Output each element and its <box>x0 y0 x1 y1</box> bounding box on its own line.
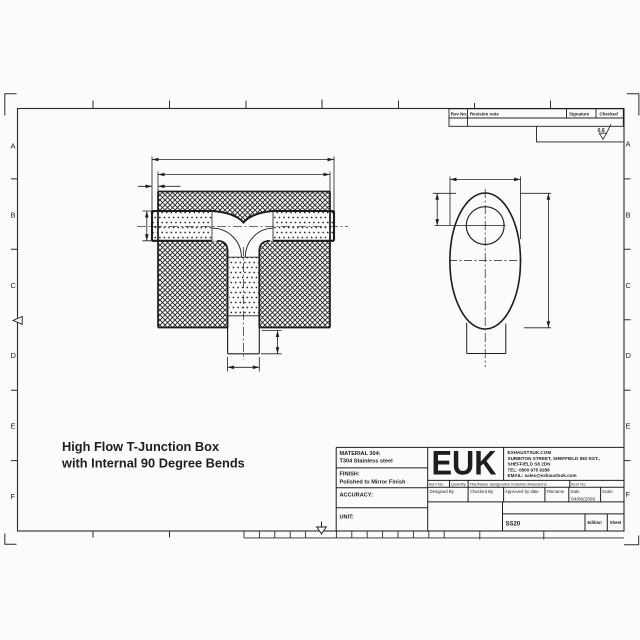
svg-text:E: E <box>626 422 631 431</box>
svg-text:EXHAUSTSUK.COM: EXHAUSTSUK.COM <box>508 450 552 455</box>
svg-text:`04/06/2009: `04/06/2009 <box>570 497 596 503</box>
svg-text:Filename: Filename <box>547 489 565 494</box>
svg-text:T304 Stainless steel: T304 Stainless steel <box>340 459 394 465</box>
svg-text:EMAIL: sales@exhaustsuk.com: EMAIL: sales@exhaustsuk.com <box>508 473 577 478</box>
svg-text:Scale: Scale <box>602 489 613 494</box>
svg-text:Rev No.: Rev No. <box>451 111 467 116</box>
svg-text:Polished to Mirror Finish: Polished to Mirror Finish <box>340 480 406 486</box>
svg-text:Designed By: Designed By <box>430 489 455 494</box>
svg-text:EUK: EUK <box>432 445 497 483</box>
svg-text:ACCURACY:: ACCURACY: <box>340 493 374 499</box>
svg-text:TEL: 0800 975 9288: TEL: 0800 975 9288 <box>508 467 551 472</box>
svg-text:Date: Date <box>571 489 581 494</box>
svg-text:Item No.: Item No. <box>571 481 586 486</box>
svg-text:MATERIAL 304:: MATERIAL 304: <box>340 451 381 457</box>
svg-text:Checked By: Checked By <box>470 489 494 494</box>
svg-text:SURBITON STREET, SHEFFIELD IND: SURBITON STREET, SHEFFIELD IND EST., <box>508 456 600 461</box>
svg-text:Item No.: Item No. <box>429 481 444 486</box>
svg-text:A: A <box>11 142 16 151</box>
svg-text:Edition: Edition <box>588 520 603 525</box>
svg-text:D: D <box>11 351 17 360</box>
svg-text:Checked: Checked <box>600 111 619 116</box>
svg-text:Signature: Signature <box>569 111 590 116</box>
svg-text:Revision note: Revision note <box>470 111 499 116</box>
svg-text:A: A <box>626 140 631 149</box>
svg-text:UNIT:: UNIT: <box>340 515 354 521</box>
svg-text:D: D <box>626 351 632 360</box>
svg-text:with Internal 90 Degree Bends: with Internal 90 Degree Bends <box>61 456 245 471</box>
svg-text:Title/Name designation materia: Title/Name designation material dimensio… <box>469 481 546 486</box>
svg-text:SHEFFIELD S8 2DN: SHEFFIELD S8 2DN <box>508 462 552 467</box>
svg-text:Sheet: Sheet <box>610 520 622 525</box>
svg-text:C: C <box>11 281 17 290</box>
svg-text:B: B <box>626 211 631 220</box>
svg-text:Approved by date: Approved by date <box>505 489 539 494</box>
svg-text:High Flow T-Junction Box: High Flow T-Junction Box <box>62 439 220 454</box>
svg-text:F: F <box>11 492 16 501</box>
svg-text:F: F <box>626 490 631 499</box>
svg-text:E: E <box>11 422 16 431</box>
svg-text:Quantity: Quantity <box>451 481 466 486</box>
svg-text:SS20: SS20 <box>506 522 521 528</box>
svg-text:FINISH:: FINISH: <box>340 472 360 478</box>
svg-text:B: B <box>11 211 16 220</box>
svg-text:C: C <box>626 281 632 290</box>
